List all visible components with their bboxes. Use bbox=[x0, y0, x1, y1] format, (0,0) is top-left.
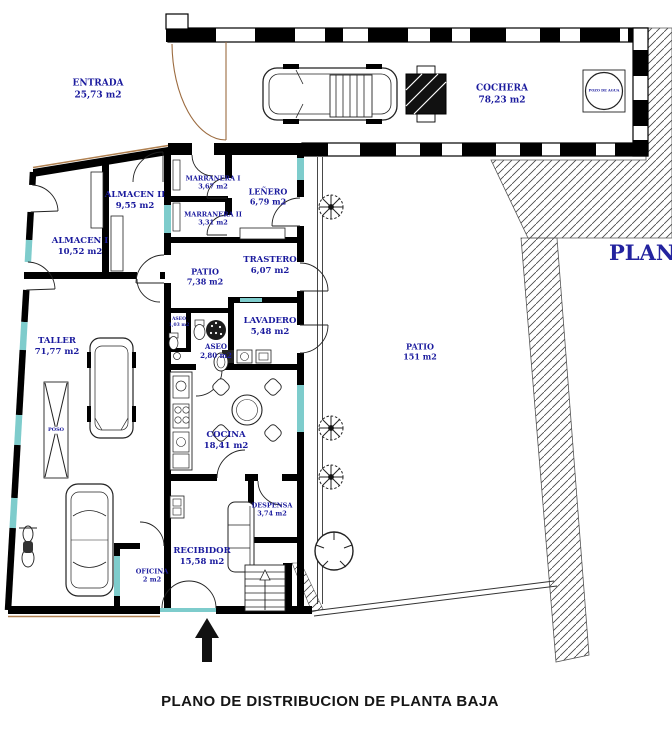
taller-car-icon bbox=[66, 484, 113, 596]
interior-walls bbox=[8, 143, 312, 617]
room-label-aseo-small: ASEO1,03 m2 bbox=[169, 317, 189, 329]
room-label-lavadero: LAVADERO5,48 m2 bbox=[244, 316, 297, 338]
room-label-recibidor: RECIBIDOR15,58 m2 bbox=[173, 546, 230, 568]
room-label-cocina: COCINA18,41 m2 bbox=[204, 430, 248, 452]
room-label-oficina: OFICINA2 m2 bbox=[136, 568, 169, 585]
room-label-taller: TALLER71,77 m2 bbox=[35, 336, 79, 358]
furniture bbox=[19, 160, 285, 611]
room-label-almacen1: ALMACEN I10,52 m2 bbox=[52, 236, 109, 258]
floor-plan-drawing bbox=[0, 0, 672, 746]
room-label-entrada: ENTRADA25,73 m2 bbox=[72, 78, 123, 101]
room-label-despensa: DESPENSA3,74 m2 bbox=[252, 502, 293, 519]
entrance-arrow-icon bbox=[195, 618, 219, 662]
cochera-pillar bbox=[406, 66, 446, 122]
large-tree-icon bbox=[315, 532, 353, 570]
tree-icon bbox=[315, 195, 353, 570]
poso-label: POSO bbox=[47, 427, 65, 434]
sofa-icon bbox=[228, 502, 254, 572]
room-label-almacen2: ALMACEN II9,55 m2 bbox=[105, 190, 166, 212]
plan-title: PLANO DE DISTRIBUCION DE PLANTA BAJA bbox=[140, 693, 520, 710]
stairs bbox=[245, 565, 285, 611]
room-label-marranera1: MARRANERA I3,67 m2 bbox=[186, 175, 241, 192]
room-label-cochera: COCHERA78,23 m2 bbox=[476, 83, 528, 106]
room-label-marranera2: MARRANERA II3,31 m2 bbox=[184, 211, 242, 228]
room-label-aseo: ASEO2,80 m2 bbox=[200, 342, 232, 360]
motorcycle-icon bbox=[19, 526, 37, 567]
room-label-patio-small: PATIO7,38 m2 bbox=[187, 267, 223, 288]
adjacent-plan-label: PLANTA bbox=[609, 240, 672, 265]
floor-plan-canvas: ENTRADA25,73 m2 COCHERA78,23 m2 POZO DE … bbox=[0, 0, 672, 746]
hatch-regions bbox=[292, 28, 672, 662]
room-label-patio-large: PATIO151 m2 bbox=[403, 342, 437, 363]
taller-van-icon bbox=[87, 338, 136, 438]
kitchen-counter bbox=[170, 372, 192, 470]
pozo-label: POZO DE AGUA bbox=[589, 89, 620, 94]
room-label-trastero: TRASTERO6,07 m2 bbox=[243, 255, 296, 277]
cochera-car-icon bbox=[263, 64, 397, 124]
room-label-lenero: LEÑERO6,79 m2 bbox=[249, 187, 288, 208]
